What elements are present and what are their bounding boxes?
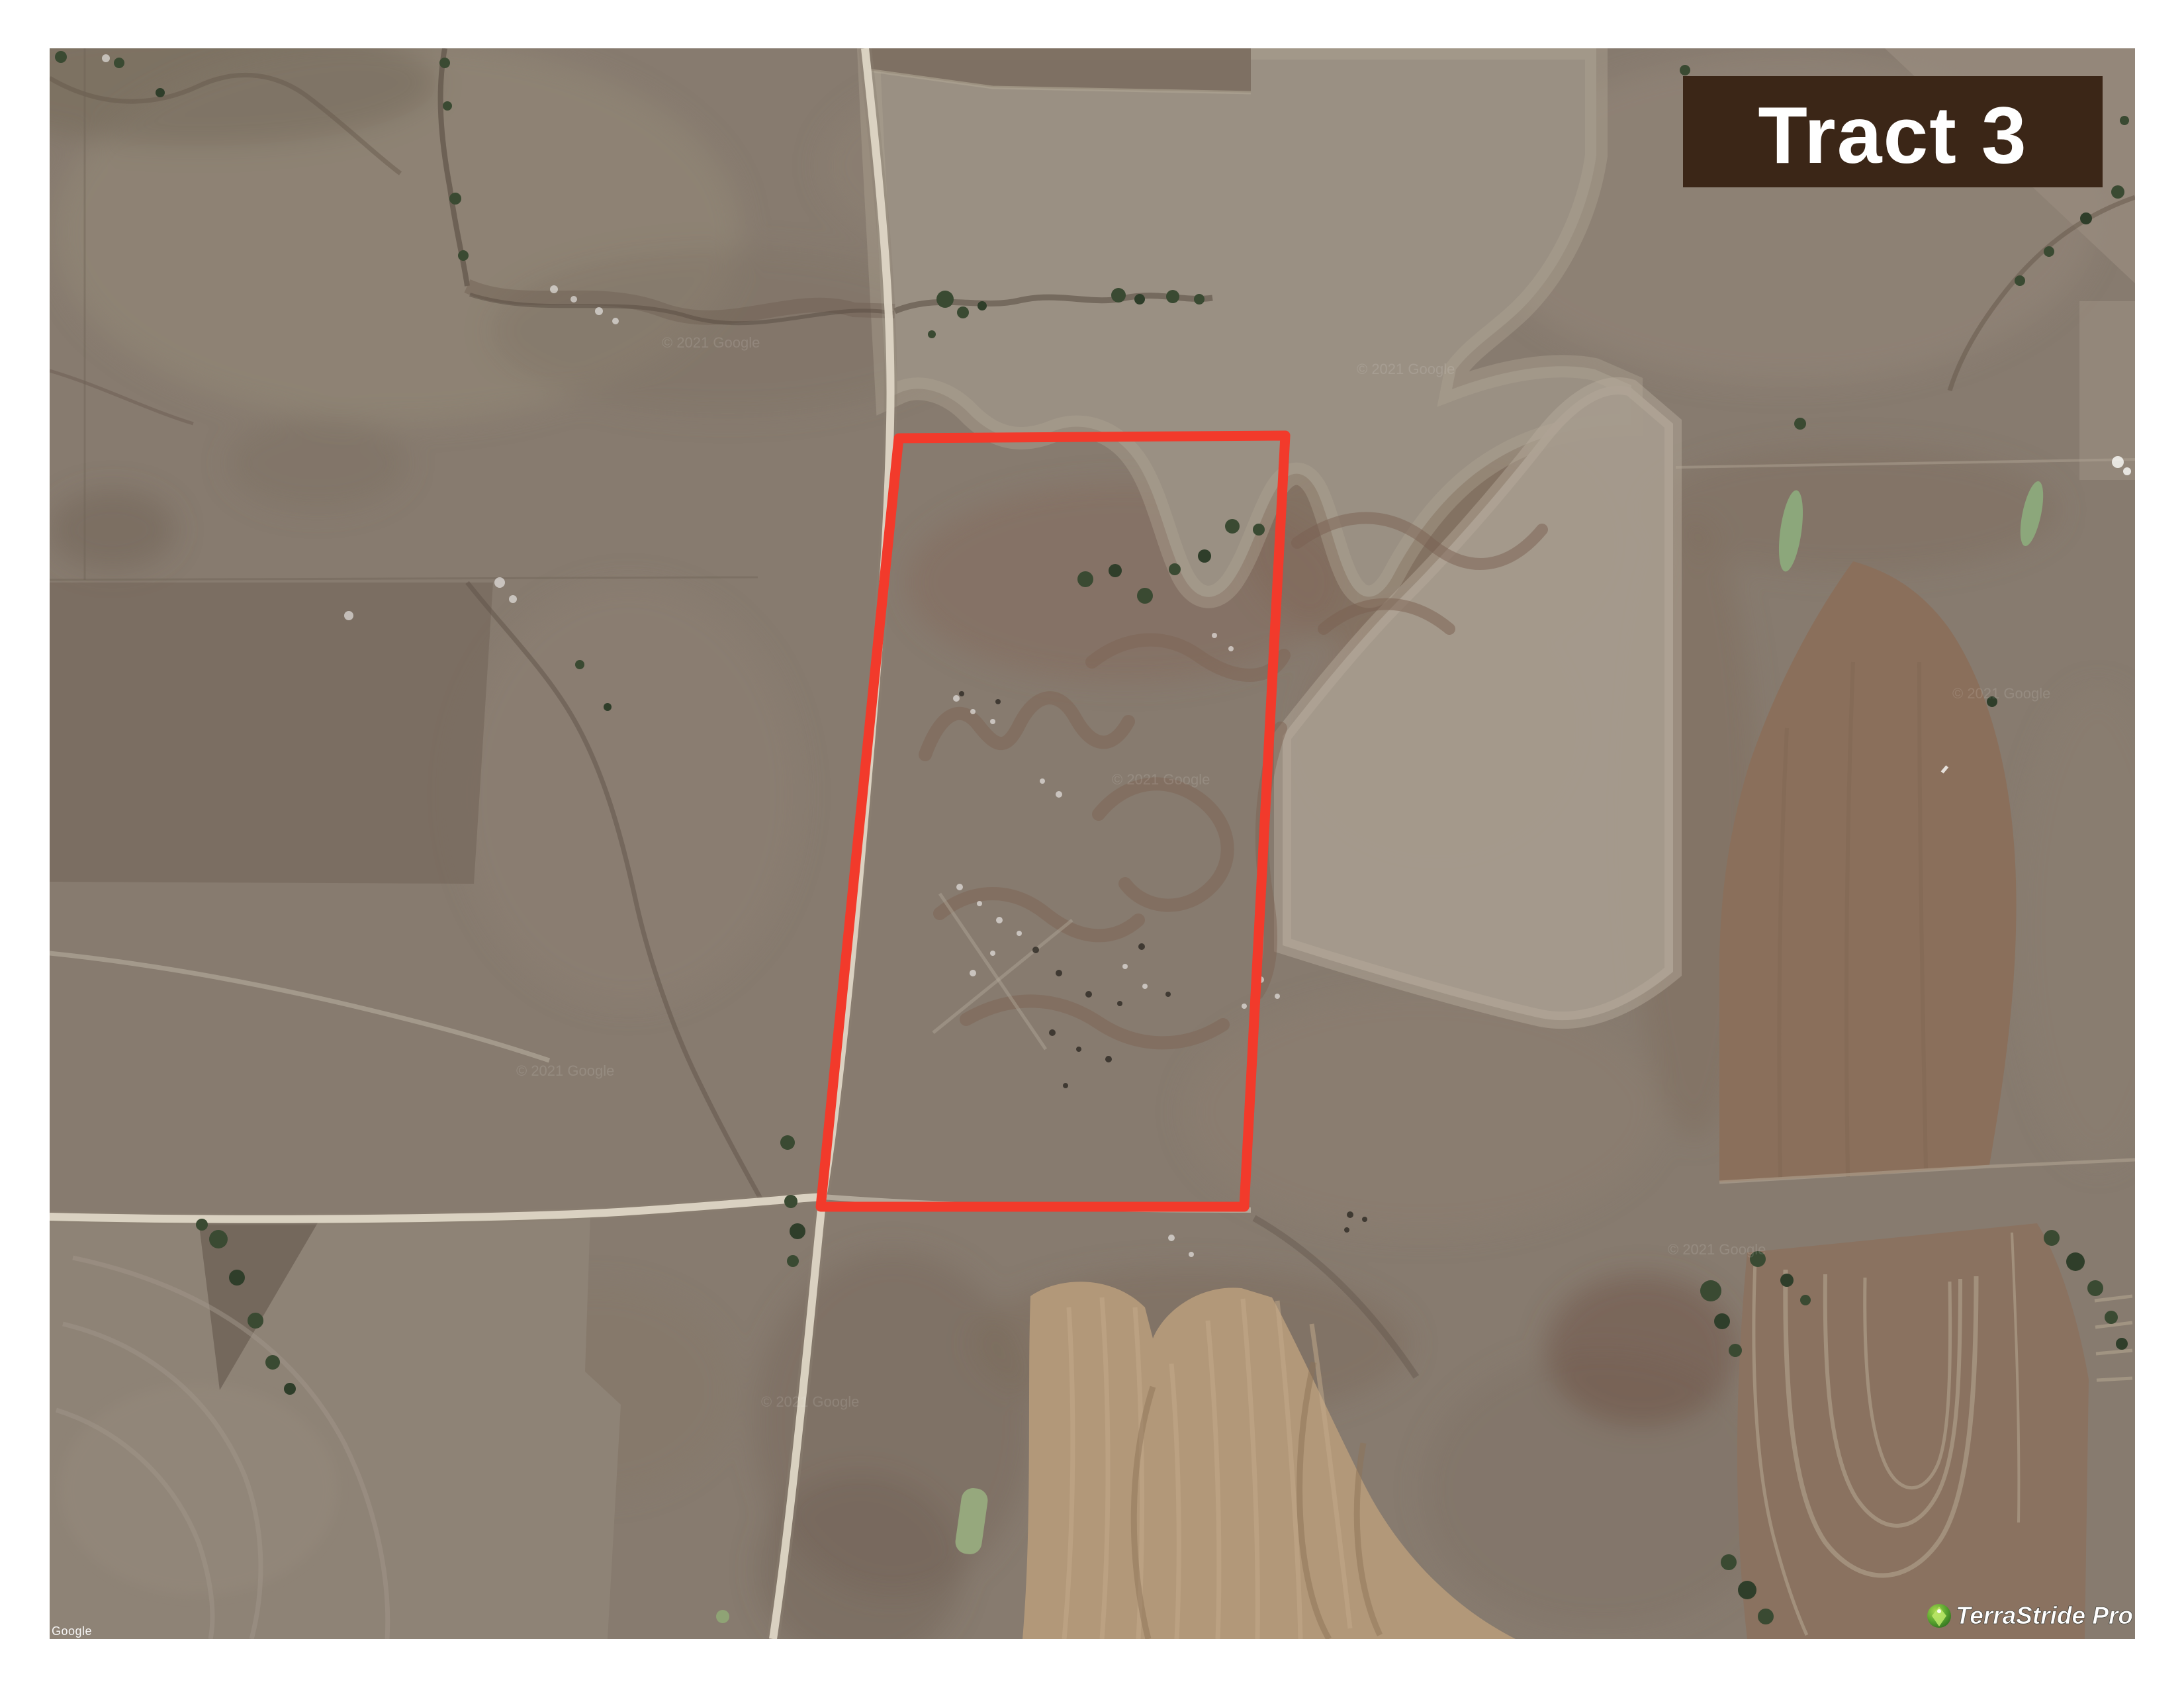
svg-text:© 2021 Google: © 2021 Google — [1357, 361, 1455, 377]
google-watermark: Google — [52, 1624, 92, 1638]
svg-text:© 2021 Google: © 2021 Google — [1112, 771, 1210, 788]
svg-text:© 2021 Google: © 2021 Google — [516, 1062, 614, 1079]
field-bottomleft-light — [60, 1383, 338, 1595]
tract-label-text: Tract 3 — [1758, 90, 2027, 180]
terrastride-text: TerraStride Pro — [1956, 1602, 2133, 1629]
satellite-map[interactable]: © 2021 Google © 2021 Google © 2021 Googl… — [0, 0, 2184, 1688]
map-canvas: © 2021 Google © 2021 Google © 2021 Googl… — [0, 20, 2181, 1665]
field-rightedge-strip — [2079, 301, 2135, 480]
svg-text:© 2021 Google: © 2021 Google — [1668, 1241, 1766, 1258]
svg-text:© 2021 Google: © 2021 Google — [761, 1393, 859, 1410]
svg-text:© 2021 Google: © 2021 Google — [1952, 685, 2050, 702]
terrastride-logo: TerraStride Pro — [1927, 1602, 2133, 1629]
map-page: © 2021 Google © 2021 Google © 2021 Googl… — [0, 0, 2184, 1688]
field-midleft-dark — [50, 583, 493, 884]
tract-label: Tract 3 — [1683, 76, 2103, 187]
svg-text:© 2021 Google: © 2021 Google — [662, 334, 760, 351]
